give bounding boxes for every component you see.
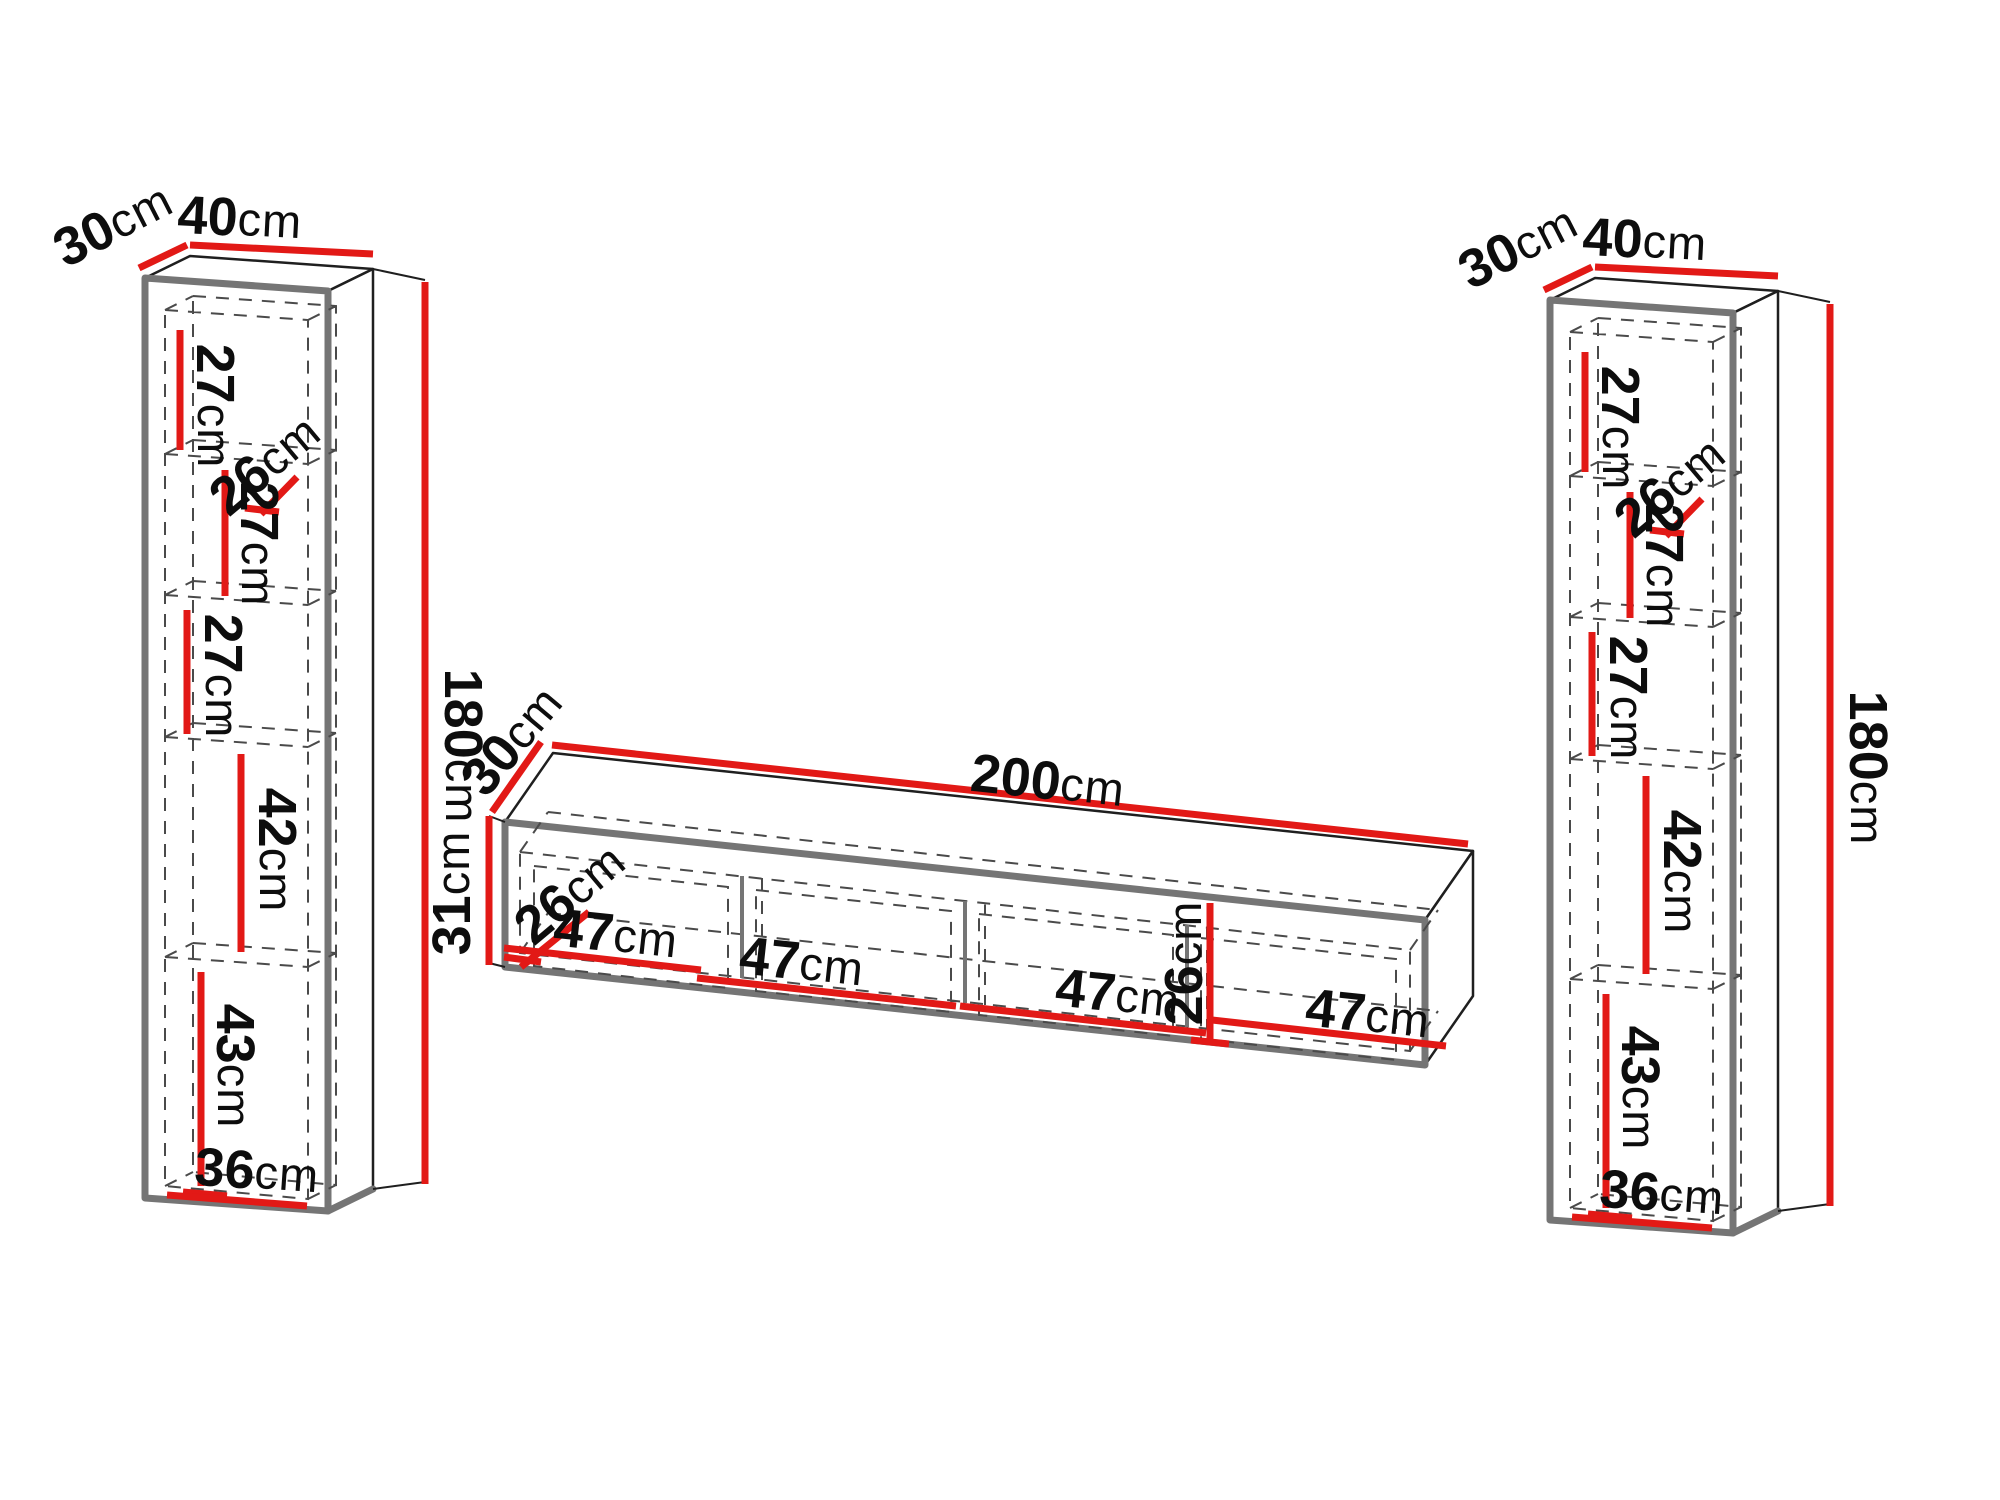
right-cabinet: 30cm 40cm 180cm 27cm 26cm 27cm 27cm 42cm… <box>1449 191 1898 1233</box>
right-cabinet-depth-label: 30cm <box>1449 191 1587 301</box>
cabinet-line-art <box>139 245 425 1211</box>
right-cabinet-shelf3-label: 27cm <box>1598 636 1658 761</box>
tv-stand-inner-height-label: 26cm <box>1154 901 1214 1026</box>
right-cabinet-shelf5-label: 43cm <box>1610 1026 1670 1151</box>
furniture-dimensions-diagram: 30cm 40cm 180cm 27cm 26cm 27cm 27cm 42cm… <box>0 0 2000 1500</box>
right-cabinet-height-label: 180cm <box>1838 691 1898 846</box>
right-cabinet-inner-width-label: 36cm <box>1598 1159 1727 1228</box>
left-cabinet-depth-label: 30cm <box>44 169 182 279</box>
right-cabinet-shelf2-label: 27cm <box>1634 504 1694 629</box>
left-cabinet-shelf4-label: 42cm <box>247 788 307 913</box>
left-cabinet-inner-width-label: 36cm <box>193 1137 322 1206</box>
left-cabinet-shelf3-label: 27cm <box>193 614 253 739</box>
left-cabinet: 30cm 40cm 180cm 27cm 26cm 27cm 27cm 42cm… <box>44 169 493 1211</box>
diagram-canvas: 30cm 40cm 180cm 27cm 26cm 27cm 27cm 42cm… <box>0 0 2000 1500</box>
right-cabinet-width-label: 40cm <box>1581 207 1709 273</box>
tv-stand-height-label: 31cm <box>422 831 482 956</box>
left-cabinet-width-label: 40cm <box>176 185 304 251</box>
left-cabinet-shelf5-label: 43cm <box>205 1004 265 1129</box>
left-cabinet-shelf2-label: 27cm <box>229 482 289 607</box>
right-cabinet-shelf4-label: 42cm <box>1652 810 1712 935</box>
tv-stand: 30cm 200cm 31cm 26cm 47cm 47cm 47cm 47cm… <box>422 673 1473 1065</box>
cabinet-line-art <box>1544 267 1830 1233</box>
